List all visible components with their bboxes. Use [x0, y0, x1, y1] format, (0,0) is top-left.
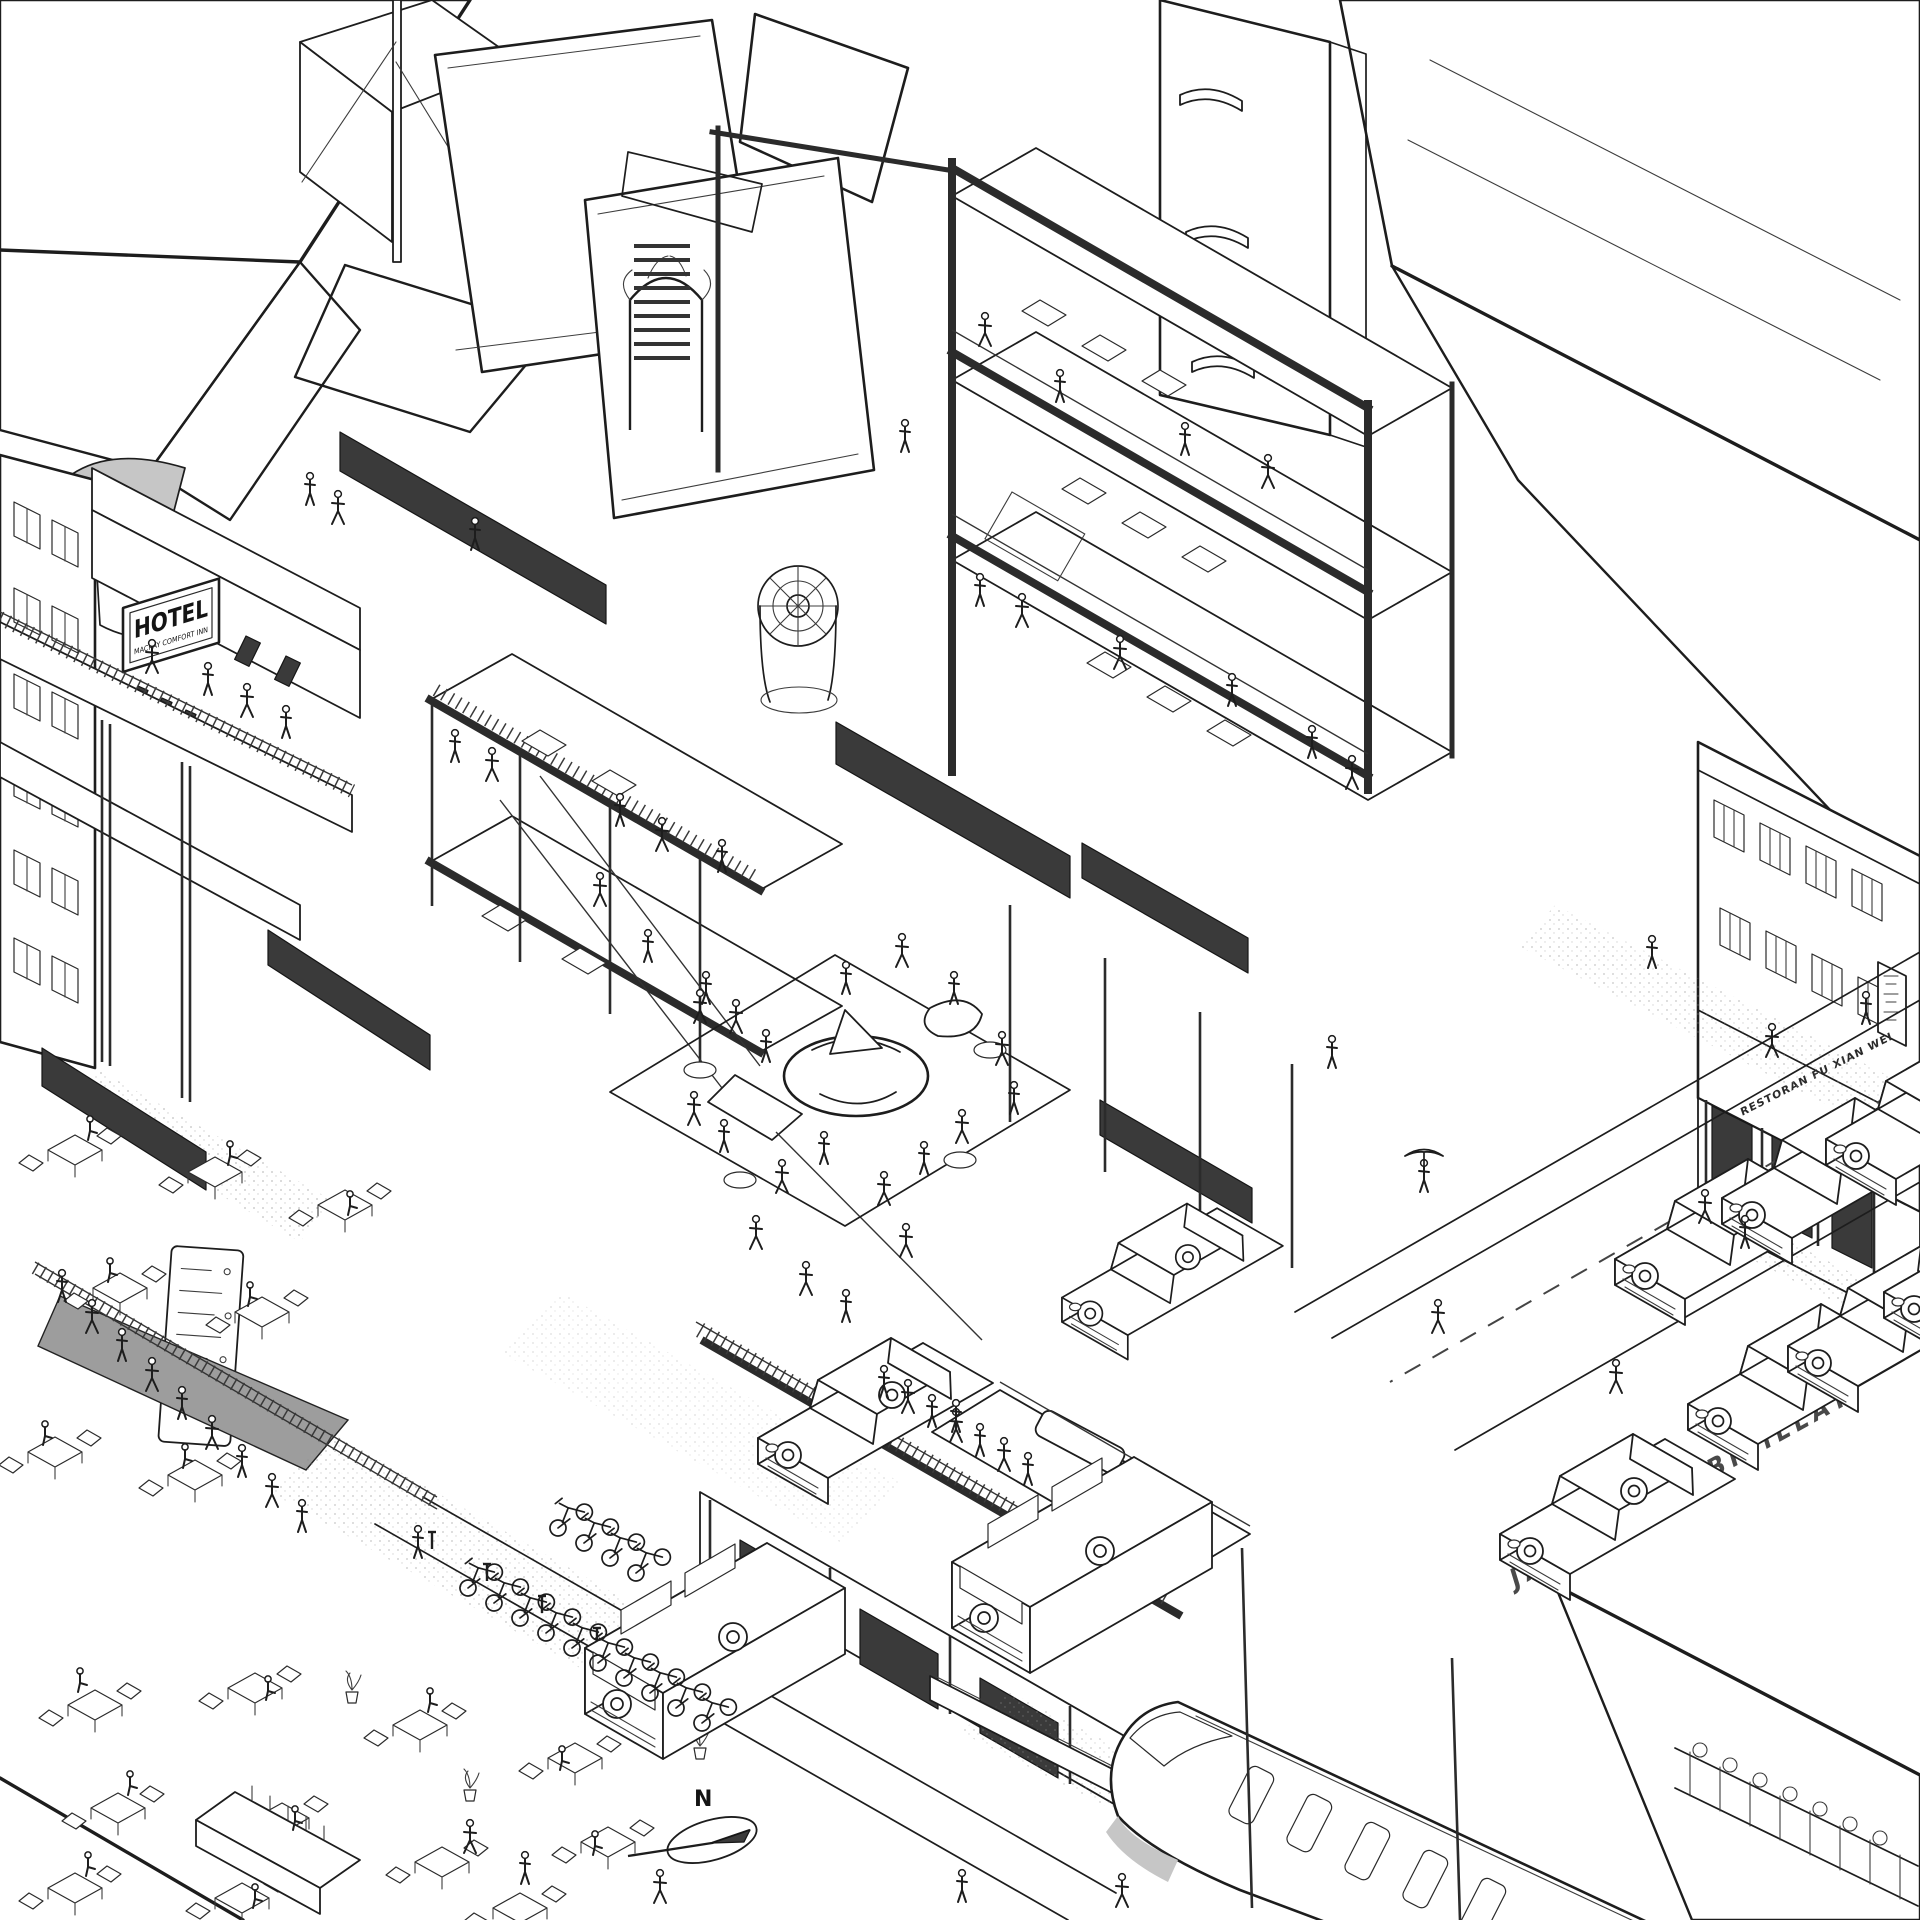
north-label: N: [694, 1787, 712, 1812]
drawing-canvas: RESTORAN FU XIAN WEI HOTEL MACKAY COMFOR…: [0, 0, 1920, 1920]
axonometric-cutaway-illustration: RESTORAN FU XIAN WEI HOTEL MACKAY COMFOR…: [0, 0, 1920, 1920]
